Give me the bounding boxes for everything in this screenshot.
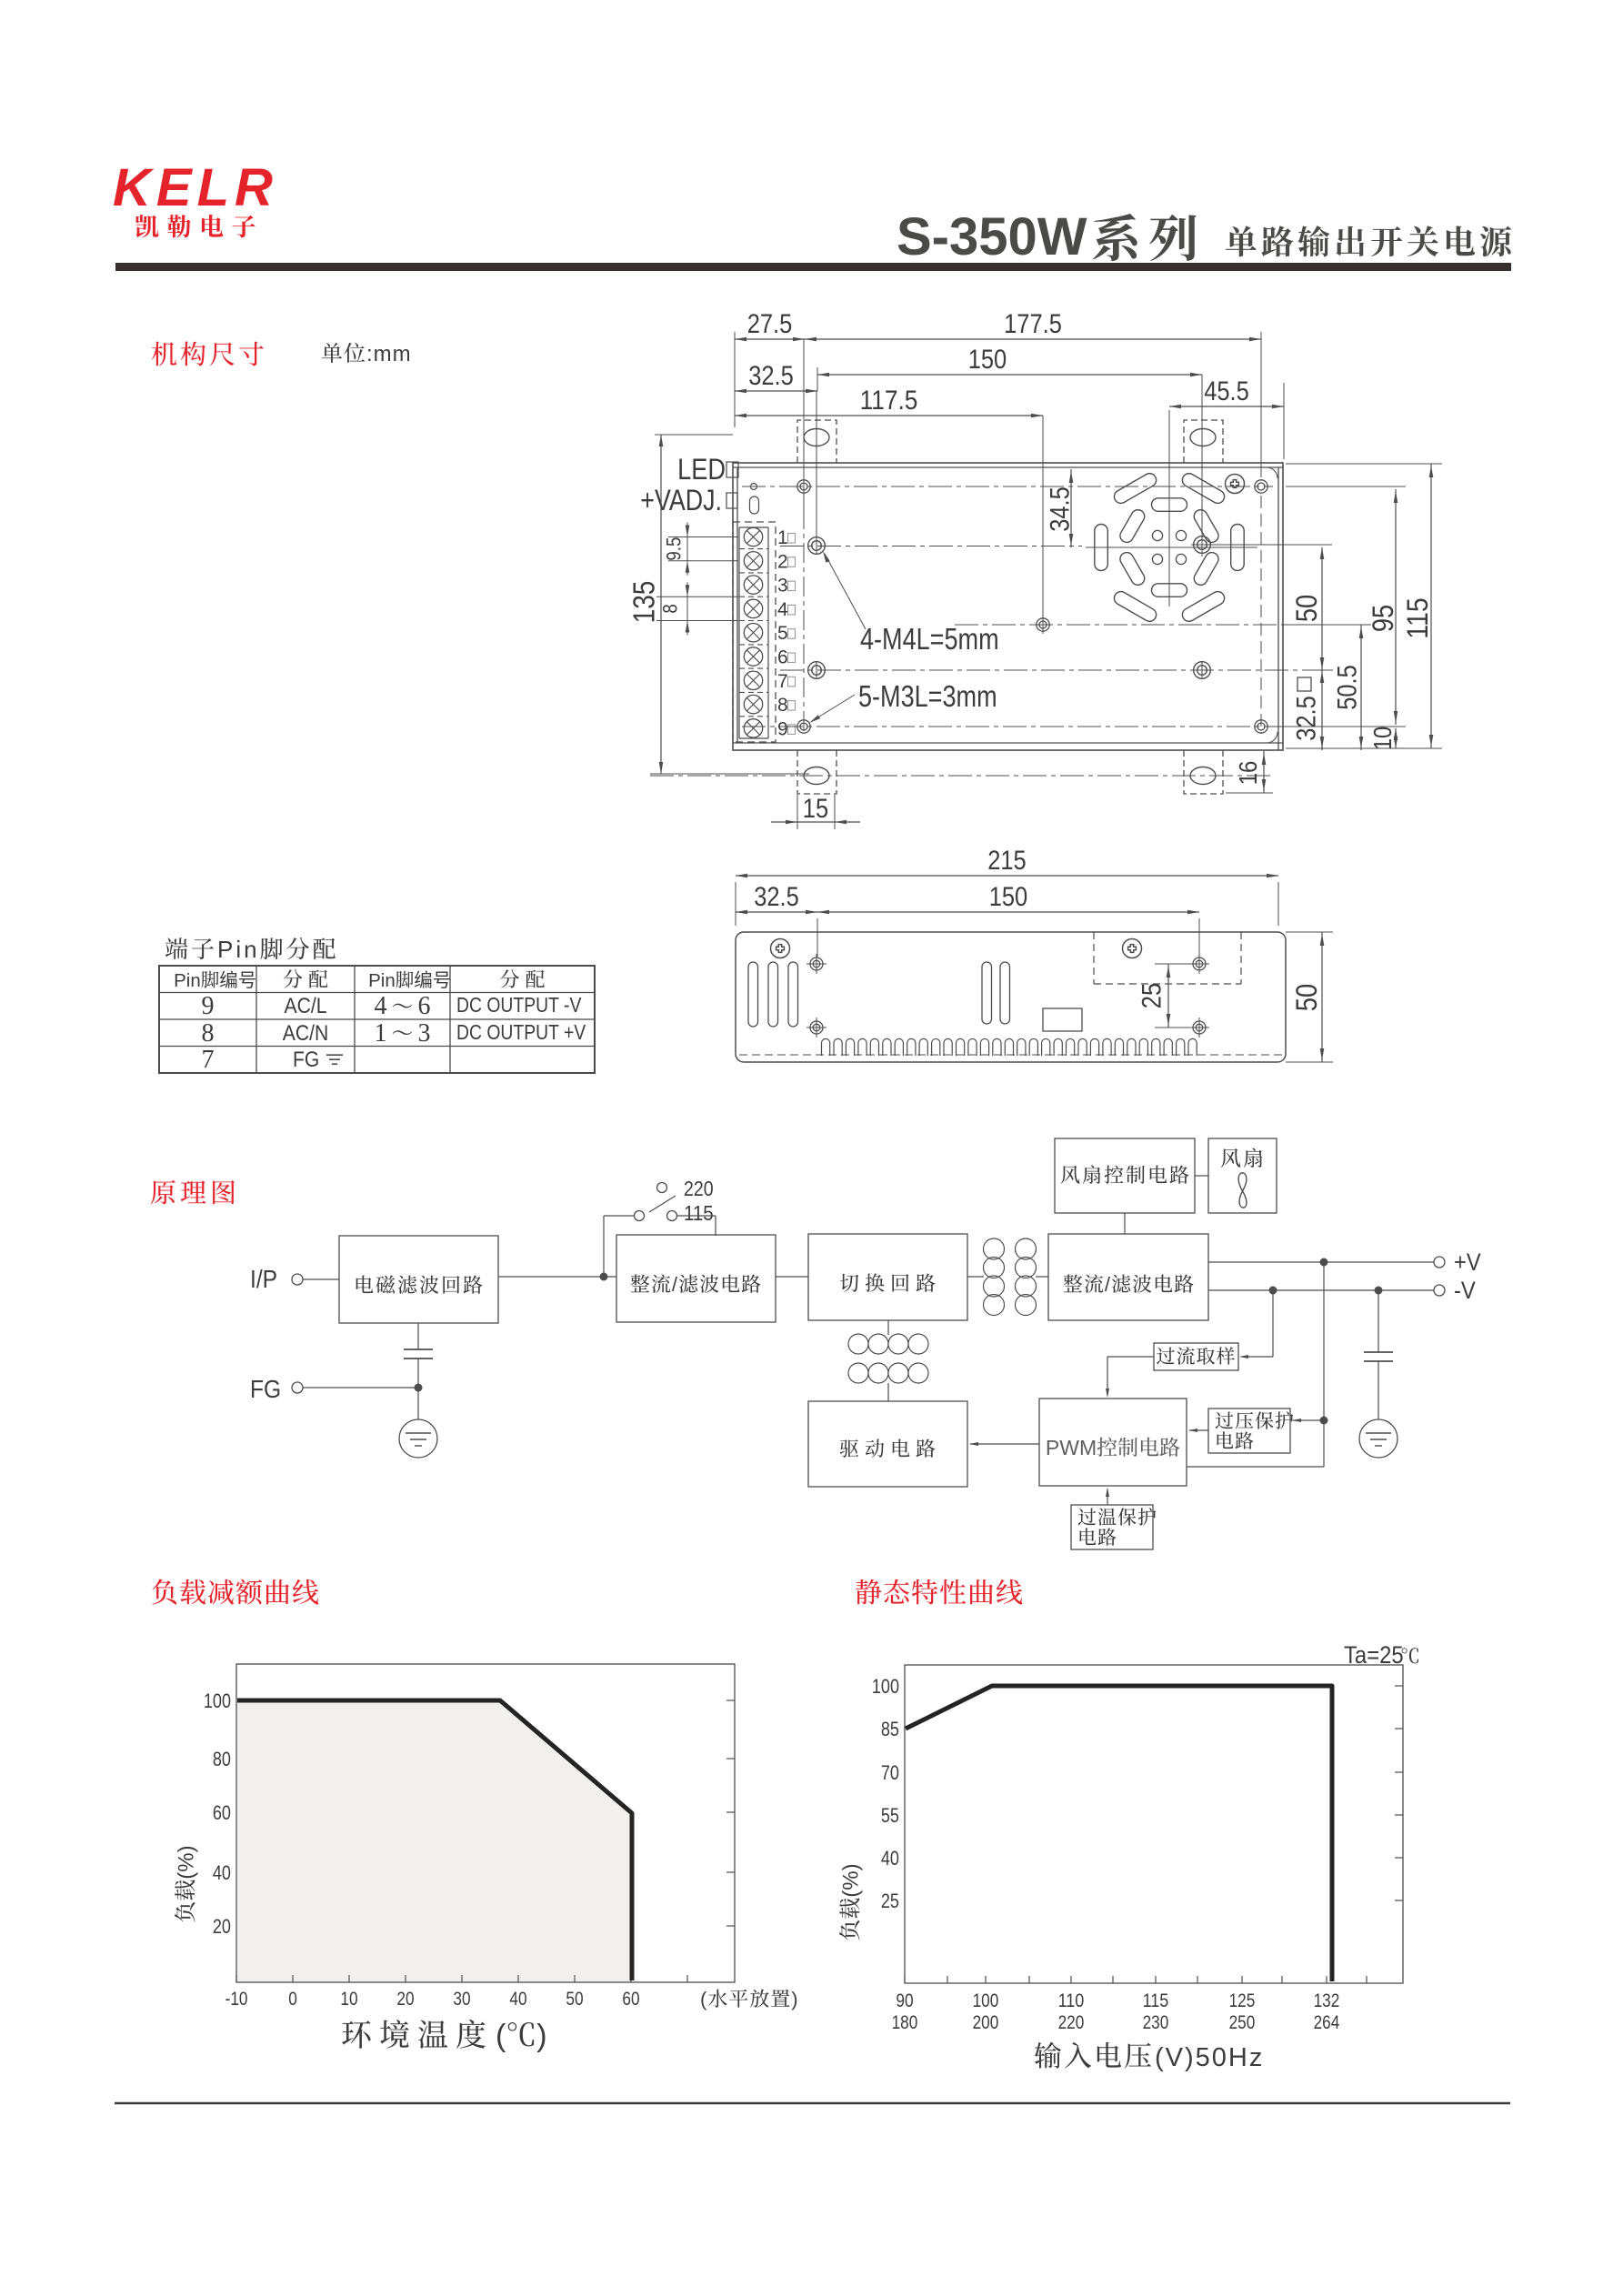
svg-text:215: 215 xyxy=(987,846,1027,876)
svg-text:32.5: 32.5 xyxy=(1292,696,1322,741)
svg-text::mm: :mm xyxy=(366,342,412,366)
svg-text:-V: -V xyxy=(1454,1277,1476,1304)
svg-text:(%): (%) xyxy=(838,1863,863,1897)
svg-text:150: 150 xyxy=(968,345,1007,375)
svg-text:编号: 编号 xyxy=(414,970,451,991)
svg-text:40: 40 xyxy=(881,1847,899,1870)
svg-text:264: 264 xyxy=(1314,2012,1340,2033)
svg-text:32.5: 32.5 xyxy=(754,882,799,912)
svg-text:115: 115 xyxy=(684,1201,714,1225)
svg-text:1: 1 xyxy=(375,1019,387,1048)
svg-text:4: 4 xyxy=(375,992,387,1020)
svg-text:Pin: Pin xyxy=(368,970,396,991)
svg-text:100: 100 xyxy=(872,1675,899,1698)
svg-text:20: 20 xyxy=(396,1989,414,2010)
svg-text:FG: FG xyxy=(250,1375,281,1403)
svg-text:7: 7 xyxy=(202,1046,215,1074)
svg-text:45.5: 45.5 xyxy=(1204,376,1249,406)
svg-text:(%): (%) xyxy=(174,1845,198,1879)
svg-text:9: 9 xyxy=(202,992,215,1020)
svg-text:AC/N: AC/N xyxy=(283,1021,329,1046)
svg-text:25: 25 xyxy=(1137,983,1167,1008)
svg-text:10: 10 xyxy=(1368,727,1397,751)
svg-text:1: 1 xyxy=(777,527,788,548)
svg-text:27.5: 27.5 xyxy=(747,309,793,339)
svg-text:110: 110 xyxy=(1058,1990,1085,2011)
svg-text:3: 3 xyxy=(418,1019,431,1048)
svg-text:8: 8 xyxy=(659,604,682,613)
svg-text:S-350W: S-350W xyxy=(897,207,1087,266)
svg-text:Pin: Pin xyxy=(217,936,260,963)
svg-text:/: / xyxy=(1105,1273,1111,1296)
svg-text:100: 100 xyxy=(204,1689,231,1712)
svg-text:15: 15 xyxy=(803,794,828,824)
svg-text:100: 100 xyxy=(973,1990,999,2011)
svg-text:177.5: 177.5 xyxy=(1004,309,1062,339)
svg-text:LED: LED xyxy=(677,453,726,486)
svg-text:(: ( xyxy=(496,2019,506,2053)
svg-text:125: 125 xyxy=(1229,1990,1256,2011)
svg-text:KELR: KELR xyxy=(113,158,278,217)
svg-text:(: ( xyxy=(700,1988,707,2010)
svg-text:+V: +V xyxy=(1454,1248,1481,1276)
svg-text:7: 7 xyxy=(777,671,788,692)
svg-text:40: 40 xyxy=(509,1989,526,2010)
svg-text:PWM: PWM xyxy=(1046,1436,1097,1459)
svg-text:150: 150 xyxy=(989,882,1028,912)
svg-text:10: 10 xyxy=(340,1989,357,2010)
svg-text:8: 8 xyxy=(777,695,788,716)
svg-text:50: 50 xyxy=(566,1989,583,2010)
svg-text:9: 9 xyxy=(777,718,788,739)
svg-text:95: 95 xyxy=(1367,605,1399,632)
svg-text:5-M3L=3mm: 5-M3L=3mm xyxy=(858,679,997,713)
svg-text:60: 60 xyxy=(622,1989,639,2010)
svg-text:0: 0 xyxy=(288,1989,297,2010)
svg-text:80: 80 xyxy=(213,1748,231,1770)
svg-text:50: 50 xyxy=(1290,984,1323,1011)
svg-text:50: 50 xyxy=(1290,595,1323,622)
svg-text:): ) xyxy=(791,1988,798,2010)
svg-text:6: 6 xyxy=(418,992,431,1020)
svg-text:50.5: 50.5 xyxy=(1333,665,1363,710)
svg-text:-10: -10 xyxy=(225,1989,248,2010)
svg-text:+VADJ.: +VADJ. xyxy=(640,484,722,516)
svg-text:20: 20 xyxy=(213,1915,231,1938)
svg-text:I/P: I/P xyxy=(250,1265,277,1293)
svg-text:30: 30 xyxy=(453,1989,470,2010)
svg-text:34.5: 34.5 xyxy=(1046,486,1076,532)
svg-text:DC OUTPUT -V: DC OUTPUT -V xyxy=(456,993,582,1017)
svg-text:8: 8 xyxy=(202,1019,215,1048)
svg-text:220: 220 xyxy=(684,1177,714,1200)
svg-text:115: 115 xyxy=(1401,597,1434,638)
svg-text:DC OUTPUT +V: DC OUTPUT +V xyxy=(456,1020,586,1044)
svg-text:200: 200 xyxy=(973,2012,999,2033)
svg-text:AC/L: AC/L xyxy=(285,994,327,1018)
svg-text:): ) xyxy=(536,2019,546,2053)
svg-text:4-M4L=5mm: 4-M4L=5mm xyxy=(860,622,999,656)
svg-text:2: 2 xyxy=(777,551,788,572)
svg-text:220: 220 xyxy=(1058,2012,1085,2033)
svg-text:70: 70 xyxy=(881,1761,899,1784)
svg-text:55: 55 xyxy=(881,1804,899,1827)
svg-text:9.5: 9.5 xyxy=(663,537,686,561)
svg-text:40: 40 xyxy=(213,1861,231,1884)
svg-text:250: 250 xyxy=(1229,2012,1256,2033)
svg-text:180: 180 xyxy=(892,2012,918,2033)
svg-text:60: 60 xyxy=(213,1801,231,1824)
svg-text:3: 3 xyxy=(777,576,788,597)
svg-text:6: 6 xyxy=(777,647,788,668)
svg-text:FG: FG xyxy=(293,1048,319,1072)
svg-text:(V)50Hz: (V)50Hz xyxy=(1155,2043,1264,2072)
svg-text:115: 115 xyxy=(1143,1990,1169,2011)
svg-text:/: / xyxy=(672,1273,678,1296)
svg-text:Pin: Pin xyxy=(174,970,201,991)
svg-text:230: 230 xyxy=(1143,2012,1169,2033)
svg-text:16: 16 xyxy=(1234,761,1262,786)
svg-text:132: 132 xyxy=(1314,1990,1340,2011)
svg-text:25: 25 xyxy=(881,1890,899,1912)
svg-text:117.5: 117.5 xyxy=(860,386,918,416)
svg-text:编号: 编号 xyxy=(219,970,256,991)
svg-text:32.5: 32.5 xyxy=(748,361,794,391)
svg-text:135: 135 xyxy=(627,581,661,624)
svg-text:4: 4 xyxy=(777,599,788,620)
svg-text:90: 90 xyxy=(896,1990,913,2011)
svg-text:5: 5 xyxy=(777,623,788,644)
svg-text:85: 85 xyxy=(881,1718,899,1740)
